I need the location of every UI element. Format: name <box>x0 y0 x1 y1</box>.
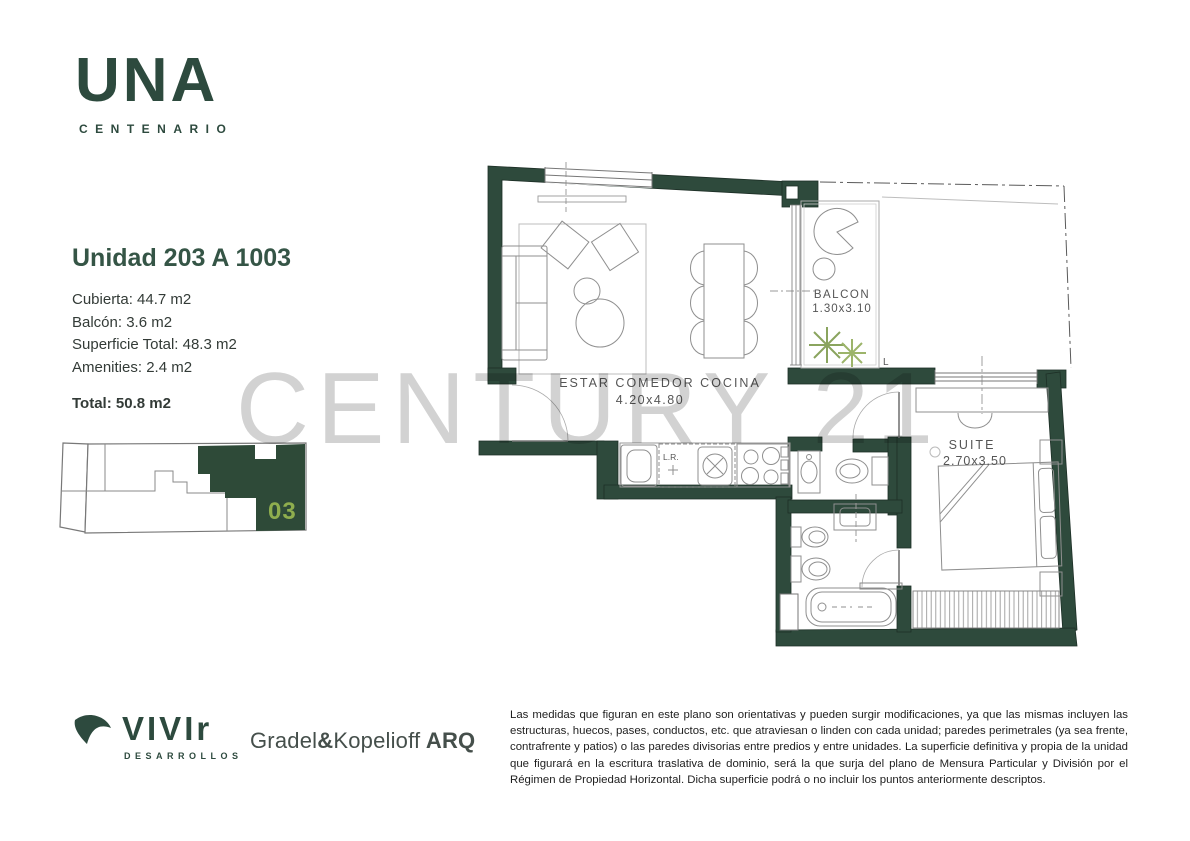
wall-balcony-bottom <box>788 368 935 384</box>
sofa <box>502 246 547 360</box>
balcony <box>770 201 879 368</box>
legal-disclaimer: Las medidas que figuran en este plano so… <box>510 707 1128 788</box>
wc-room <box>798 451 888 493</box>
desk-chair <box>958 412 992 428</box>
wall-entry-stub <box>488 368 516 384</box>
side-table <box>574 278 600 304</box>
kitchen <box>620 443 790 487</box>
label-living-dims: 4.20x4.80 <box>616 393 684 407</box>
wall-wc-top-left <box>788 437 822 451</box>
wall-niche <box>780 594 798 630</box>
bidet <box>791 527 828 547</box>
label-suite-name: SUITE <box>949 438 996 452</box>
wall-bottom <box>776 628 1077 646</box>
label-living-name: ESTAR COMEDOR COCINA <box>559 376 761 390</box>
floorplan-brochure-page: UNA CENTENARIO Unidad 203 A 1003 Cubiert… <box>0 0 1190 841</box>
balcony-table <box>813 258 835 280</box>
living-furniture <box>502 221 758 374</box>
washing-machine <box>698 447 732 485</box>
vivir-logo: VIVIr DESARROLLOS <box>72 712 243 761</box>
keyplan-left-strip <box>60 443 88 532</box>
bed <box>938 462 1062 570</box>
label-balcony-dims: 1.30x3.10 <box>812 303 872 315</box>
label-level-marker: L <box>883 357 889 368</box>
wall-living-bottom <box>479 441 604 455</box>
bath-door <box>862 550 899 587</box>
balcony-inner-line <box>804 204 876 365</box>
wc-toilet-bowl <box>840 464 860 478</box>
dining-table <box>704 244 744 358</box>
stove <box>737 444 789 487</box>
suite-door <box>853 392 899 438</box>
property-line <box>820 182 1071 368</box>
walls <box>479 166 1077 646</box>
closet <box>913 591 1059 628</box>
wc-sink <box>801 461 817 483</box>
blanket-fold <box>938 464 991 522</box>
window-sill <box>538 196 626 202</box>
label-laundry: L.R. <box>663 452 679 462</box>
entry-door <box>512 385 568 441</box>
toilet <box>791 556 830 582</box>
key-plan-diagram: 03 <box>0 0 320 570</box>
dining-chairs <box>691 251 758 355</box>
column-detail <box>786 186 798 199</box>
bathtub <box>806 588 896 626</box>
wc-toilet-tank <box>872 457 888 485</box>
vivir-logo-text: VIVIr <box>122 712 243 745</box>
kitchen-sink-cabinet <box>621 445 657 486</box>
coffee-table <box>576 299 624 347</box>
vivir-logo-subtext: DESARROLLOS <box>124 751 243 761</box>
dim-mark <box>930 447 940 457</box>
plant <box>809 327 866 367</box>
terrace-edge-line <box>882 197 1058 204</box>
label-balcony-name: BALCON <box>814 289 870 301</box>
armchair <box>591 223 638 270</box>
architect-part1: Gradel <box>250 728 317 753</box>
wall-suite-left-lower <box>897 586 911 632</box>
label-suite-dims: 2.70x3.50 <box>943 454 1007 468</box>
architect-part2: Kopelioff <box>333 728 420 753</box>
wall-suite-left-upper <box>897 437 911 548</box>
bathroom <box>791 494 902 626</box>
pillow <box>1040 516 1056 558</box>
keyplan-unit-number: 03 <box>268 498 297 525</box>
balcony-chair <box>814 208 858 254</box>
wall-wc-bath-divider <box>788 500 902 513</box>
armchair <box>541 221 589 269</box>
laundry-box <box>659 444 735 487</box>
floor-plan: ESTAR COMEDOR COCINA 4.20x4.80 BALCON 1.… <box>470 155 1120 660</box>
architect-suffix: ARQ <box>420 728 475 753</box>
architect-credit: Gradel&Kopelioff ARQ <box>250 728 475 754</box>
architect-amp: & <box>317 728 333 753</box>
leaf-icon <box>72 712 114 760</box>
wc-tap <box>807 455 812 460</box>
balcony-outline <box>801 201 879 368</box>
wc-toilet <box>836 459 868 483</box>
plus-mark <box>668 465 678 475</box>
kitchen-sink <box>627 450 651 482</box>
